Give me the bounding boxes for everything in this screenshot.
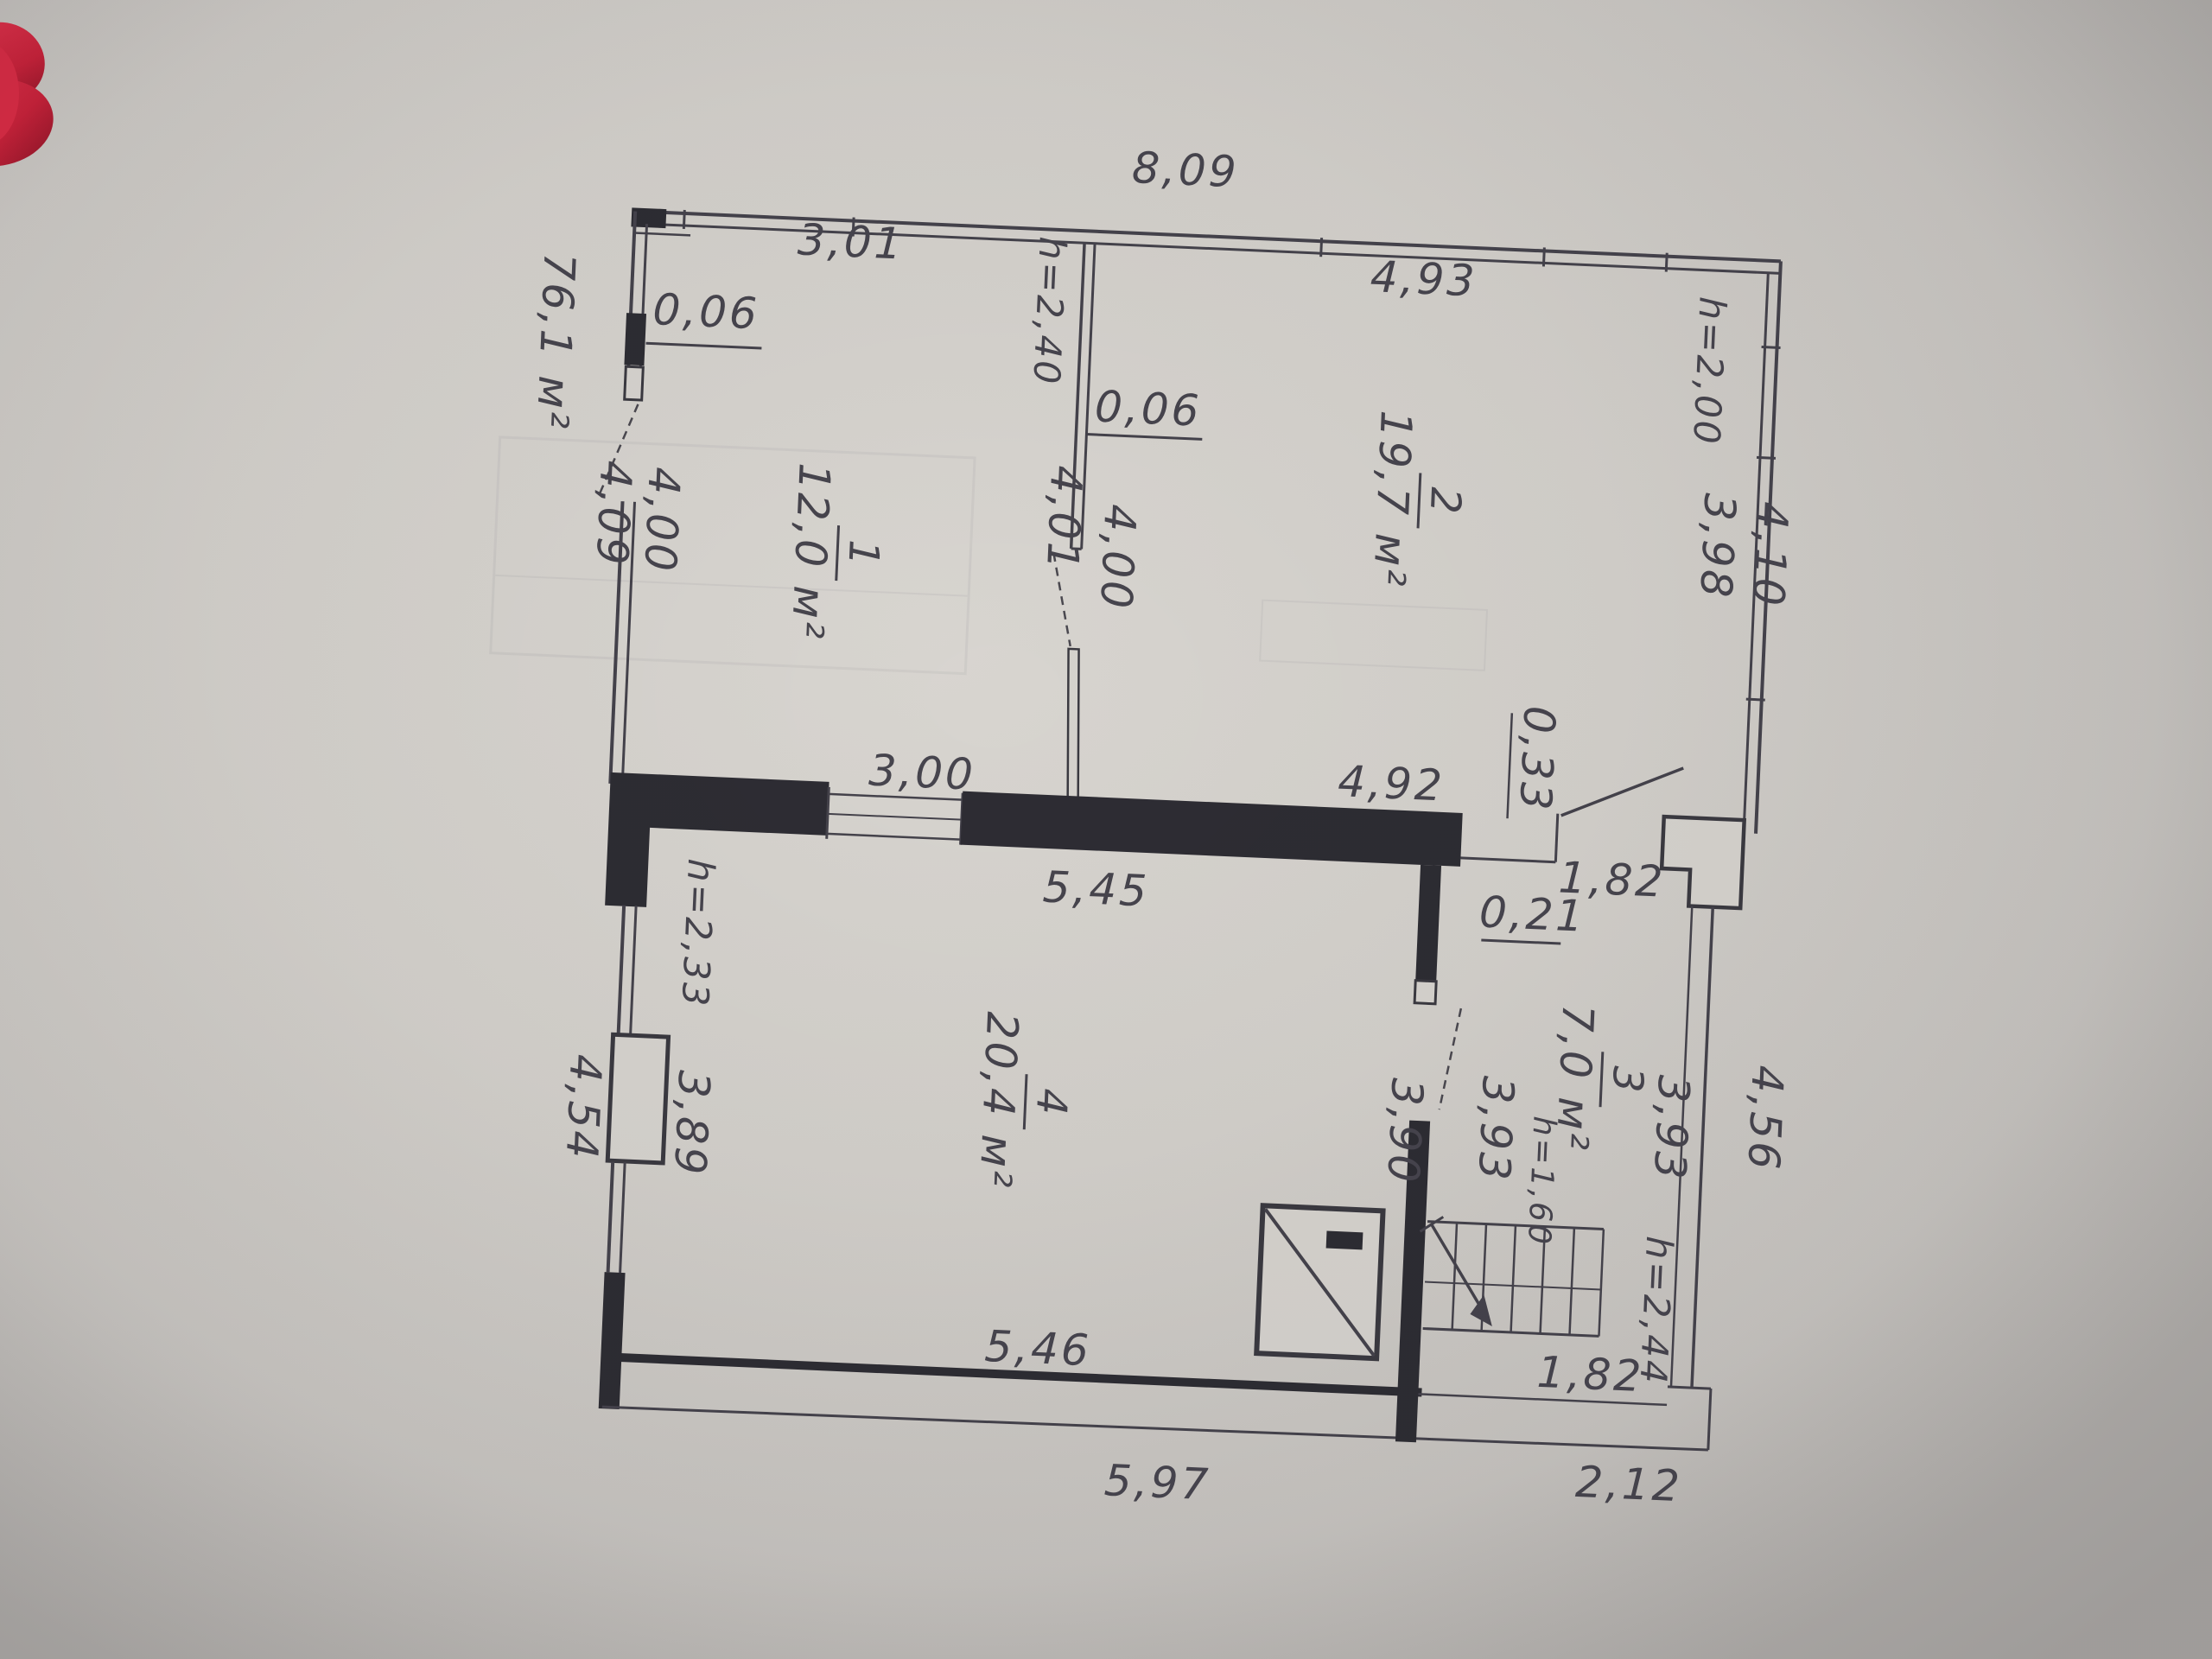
floor-plan-drawing: 8,09 3,01 0,06 0,06 4,93 3,00 5,45 4,92 … [0,0,2212,1659]
floor-plan-photo: 8,09 3,01 0,06 0,06 4,93 3,00 5,45 4,92 … [0,0,2212,1659]
photo-vignette [0,0,2212,1659]
